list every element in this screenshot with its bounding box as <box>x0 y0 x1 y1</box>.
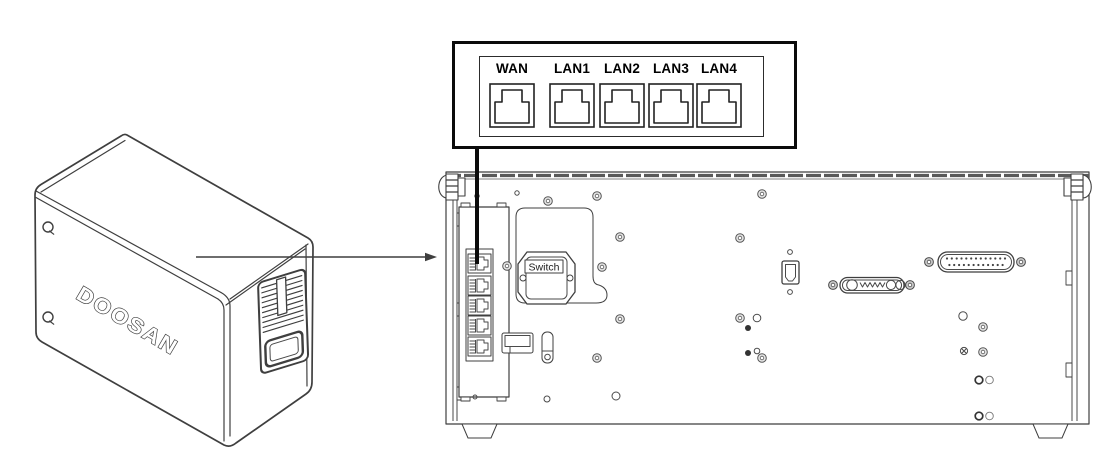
port-callout-inner-frame: WAN LAN1 LAN2 <box>479 56 764 137</box>
switch-plate: Switch <box>516 208 607 304</box>
rj45-port-icon <box>696 83 742 128</box>
rj45-port-icon <box>599 83 645 128</box>
rj45-side-port-icon <box>468 254 491 273</box>
ground-slot <box>542 332 553 363</box>
rj45-side-port-icon <box>468 337 491 356</box>
callout-leader-line <box>475 146 479 264</box>
cable-gland-right-icon <box>1064 174 1091 200</box>
port-label: LAN2 <box>599 61 645 76</box>
ethernet-module <box>459 203 509 401</box>
port-label: LAN1 <box>549 61 595 76</box>
dsub-combo-connector-icon <box>829 278 915 294</box>
controller-rear-panel-drawing: Switch <box>430 165 1114 445</box>
rj45-side-ports <box>468 254 491 356</box>
rj45-side-port-icon <box>468 296 491 315</box>
cover-plate <box>502 333 533 353</box>
rj45-side-port-icon <box>468 316 491 335</box>
rj45-side-port-icon <box>468 276 491 295</box>
rj45-port-icon <box>489 83 535 128</box>
port-label: LAN4 <box>696 61 742 76</box>
switch-label: Switch <box>529 262 560 274</box>
port-lan2: LAN2 <box>599 57 645 133</box>
port-label: WAN <box>489 61 535 76</box>
figure-canvas: DOOSAN <box>0 0 1114 473</box>
cable-gland-left-icon <box>439 174 465 200</box>
panel-feet <box>462 424 1068 438</box>
port-lan1: LAN1 <box>549 57 595 133</box>
port-lan4: LAN4 <box>696 57 742 133</box>
rj45-port-icon <box>648 83 694 128</box>
vent-grille-icon <box>258 269 308 374</box>
rj45-port-icon <box>549 83 595 128</box>
port-label: LAN3 <box>648 61 694 76</box>
router-device-drawing: DOOSAN <box>15 120 335 455</box>
pointer-arrow <box>192 246 442 268</box>
port-wan: WAN <box>489 57 535 133</box>
port-lan3: LAN3 <box>648 57 694 133</box>
port-callout-box: WAN LAN1 LAN2 <box>452 41 797 149</box>
db25-connector-icon <box>925 252 1026 272</box>
